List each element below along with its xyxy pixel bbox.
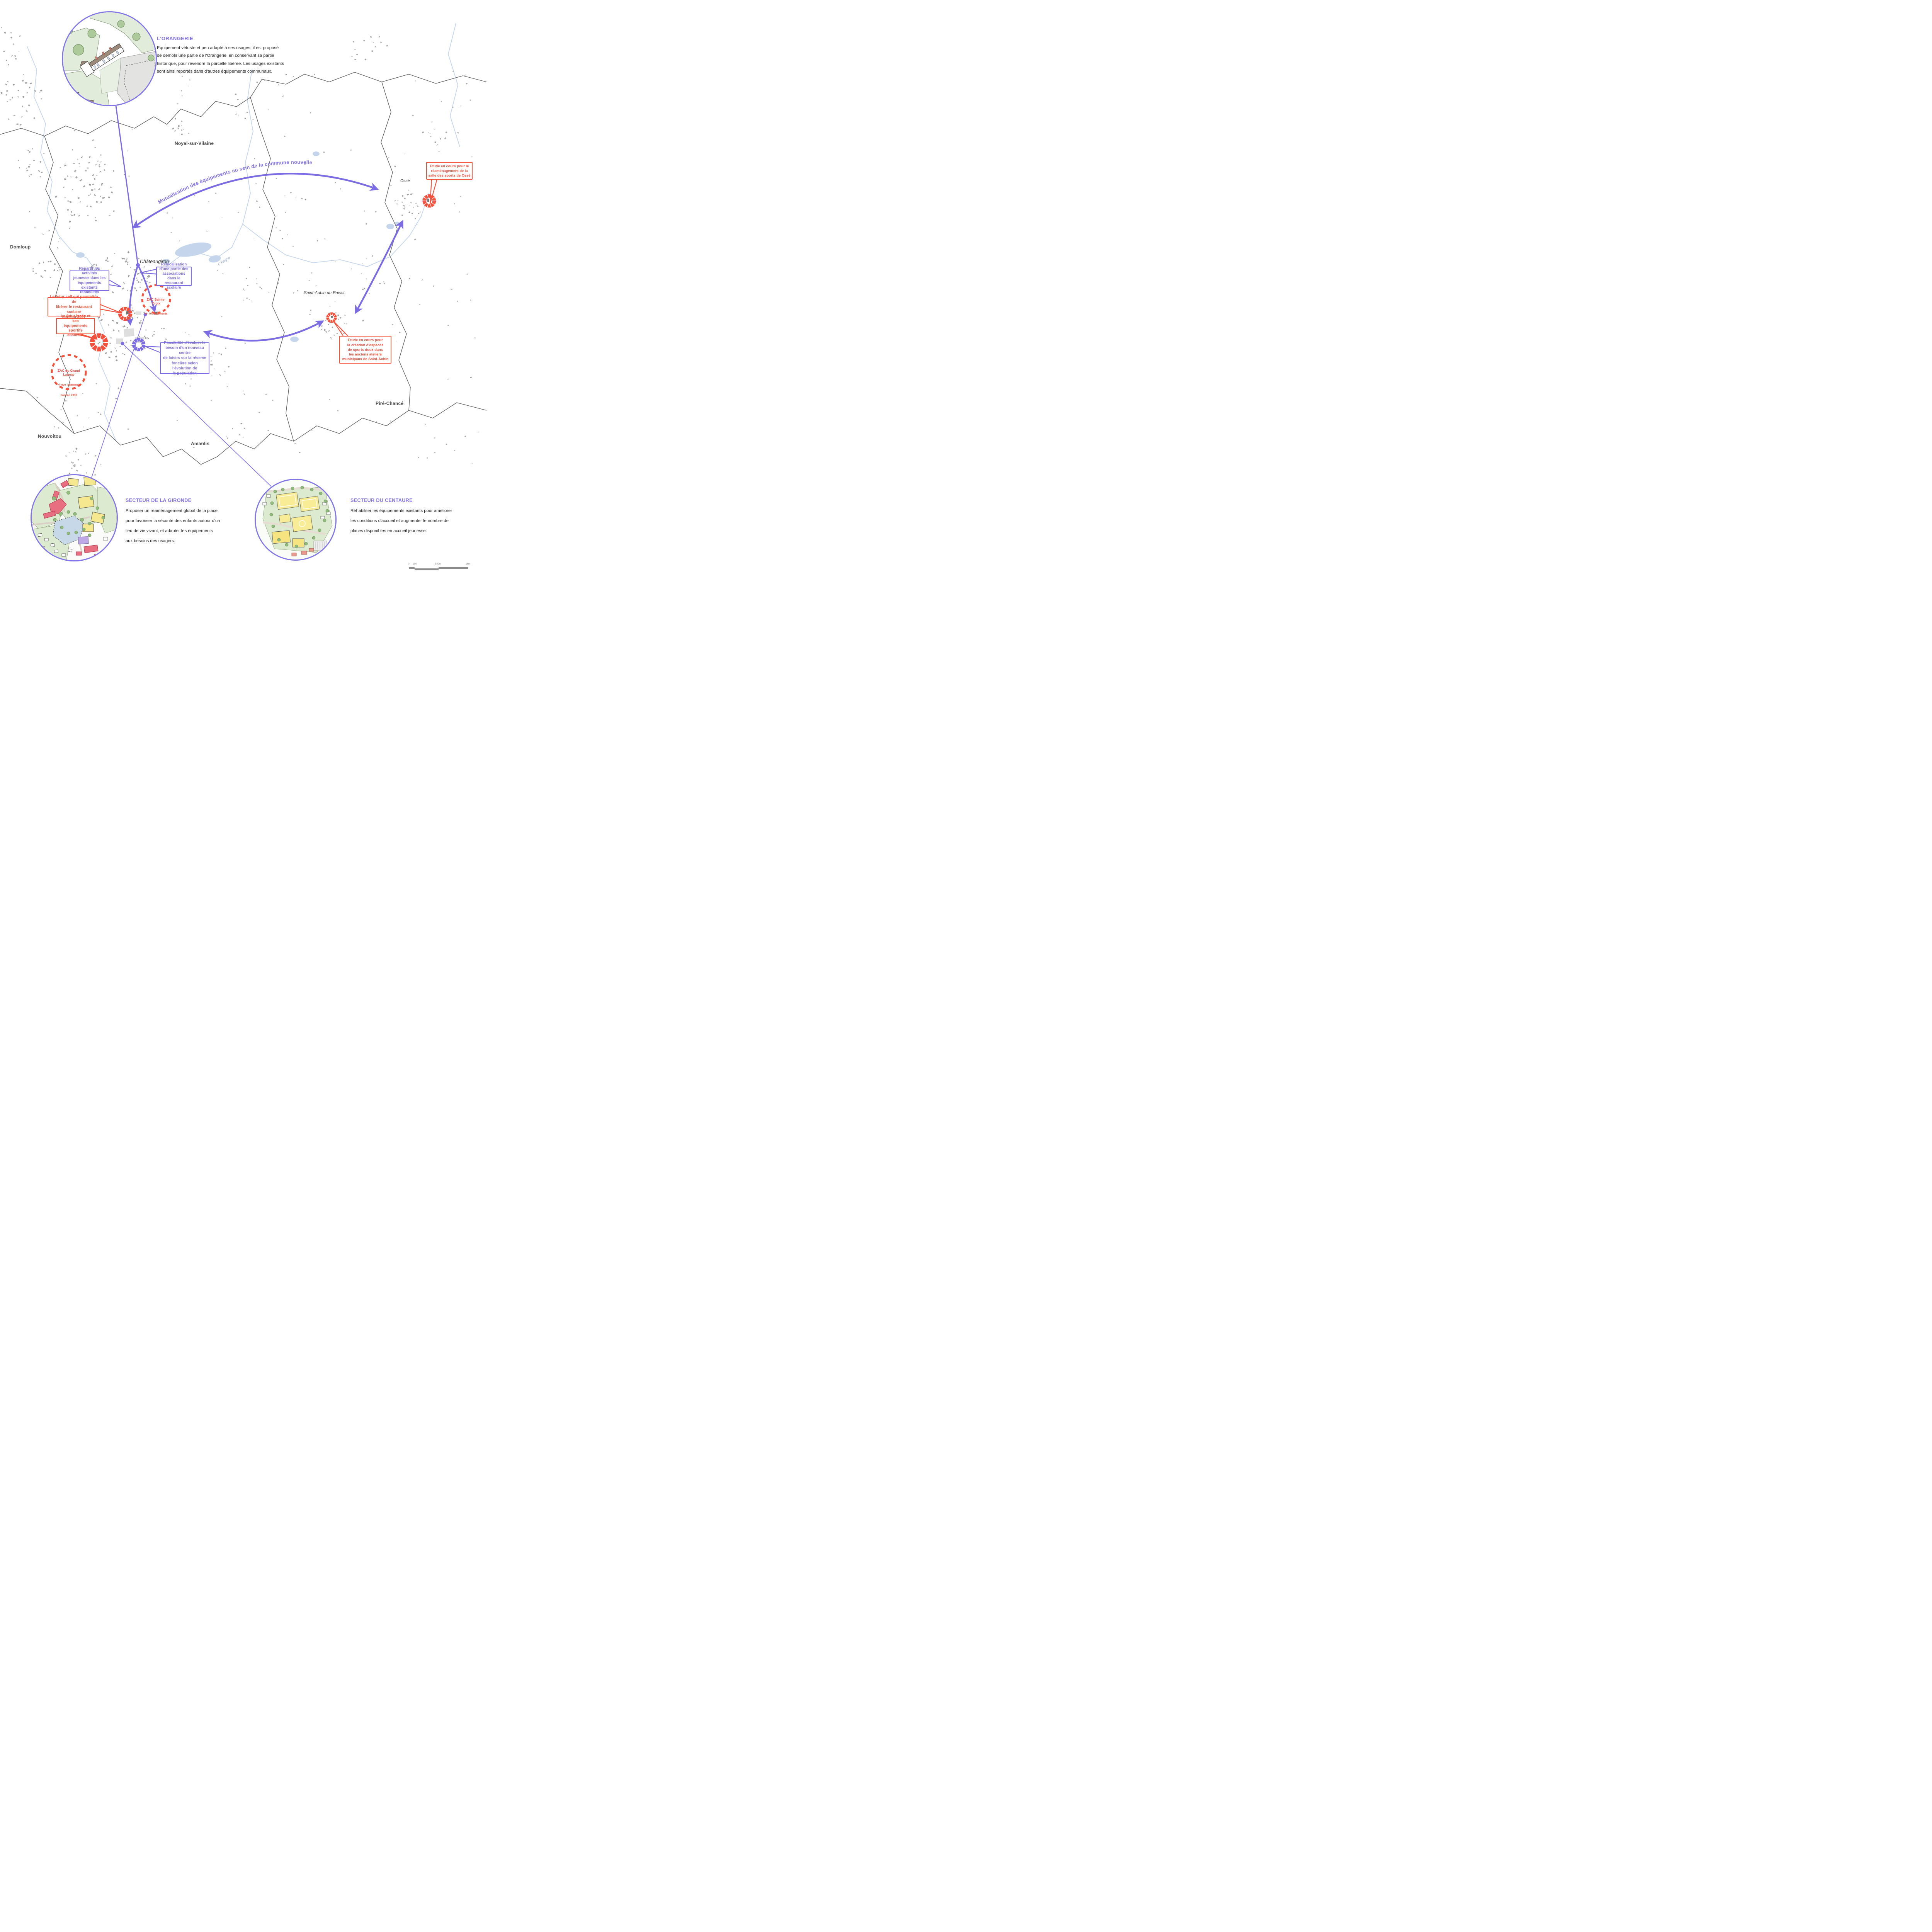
section-gironde: SECTEUR DE LA GIRONDE Proposer un réamén…: [126, 498, 234, 546]
inset-gironde-illustration: [31, 474, 118, 561]
inset-centaure-illustration: [255, 479, 337, 561]
section-centaure-title: SECTEUR DU CENTAURE: [350, 498, 466, 503]
zac-grand-launay-horizon: horizon 2035: [49, 394, 88, 397]
callout-etude-saint-aubin: Etude en cours pour la création d'espace…: [339, 336, 391, 364]
place-label-pire-chance: Piré-Chancé: [376, 401, 403, 406]
zac-sainte-croix-label: ZAC Sainte- Croix +/- 400 logements: [138, 291, 174, 323]
zac-grand-launay-label: ZAC du Grand Launay +/- 900 logements ho…: [49, 362, 88, 404]
scale-tick-1km: 1km: [466, 563, 470, 565]
place-label-amanlis: Amanlis: [191, 441, 209, 446]
inset-orangerie-illustration: [62, 11, 157, 106]
section-gironde-body: Proposer un réaménagement global de la p…: [126, 506, 234, 546]
scale-tick-500m: 500m: [435, 563, 441, 565]
section-gironde-title: SECTEUR DE LA GIRONDE: [126, 498, 234, 503]
scale-bar-segment-2: [415, 568, 439, 570]
place-label-osse: Ossé: [400, 179, 410, 183]
zac-sainte-croix-name: ZAC Sainte- Croix: [138, 298, 174, 305]
place-label-nouvoitou: Nouvoitou: [38, 434, 61, 439]
planning-map-canvas: Noyal-sur-Vilaine Domloup Châteaugiron O…: [0, 0, 487, 583]
place-label-domloup: Domloup: [10, 244, 31, 250]
zac-sainte-croix-sub: +/- 400 logements: [138, 312, 174, 316]
section-orangerie-title: L'ORANGERIE: [157, 36, 296, 41]
zac-grand-launay-name: ZAC du Grand Launay: [49, 369, 88, 376]
callout-futur-lycee: Le futur lycée et ses équipements sporti…: [56, 318, 95, 334]
callout-relocalisation: Relocalisation d'une partie des associat…: [156, 267, 192, 286]
section-centaure-body: Réhabiliter les équipements existants po…: [350, 506, 466, 536]
scale-bar: 0 100 500m 1km: [406, 563, 473, 573]
callout-futur-self: Le futur self qui permettra de libérer l…: [48, 297, 100, 316]
place-label-saint-aubin: Saint-Aubin du Pavail: [304, 291, 344, 295]
place-label-noyal: Noyal-sur-Vilaine: [175, 141, 214, 146]
scale-bar-segment-3: [439, 567, 468, 569]
scale-tick-100: 100: [413, 563, 417, 565]
centaure-sketch: [256, 480, 335, 560]
orangerie-sketch: [63, 12, 156, 105]
callout-etude-osse: Etude en cours pour le réaménagement de …: [426, 162, 473, 180]
section-centaure: SECTEUR DU CENTAURE Réhabiliter les équi…: [350, 498, 466, 536]
scale-bar-segment-1: [409, 567, 415, 569]
callout-possibilite-centre-loisirs: Possibilité d'évaluer le besoin d'un nou…: [160, 342, 209, 374]
zac-grand-launay-sub: +/- 900 logements: [49, 383, 88, 387]
callout-repartir-activites: Répartir les activités jeunesse dans les…: [70, 270, 109, 291]
pond-layer: [76, 151, 400, 342]
section-orangerie: L'ORANGERIE Equipement vétuste et peu ad…: [157, 36, 296, 75]
scale-tick-0: 0: [408, 563, 410, 565]
section-orangerie-body: Equipement vétuste et peu adapté à ses u…: [157, 44, 296, 75]
gironde-sketch: [32, 475, 117, 560]
